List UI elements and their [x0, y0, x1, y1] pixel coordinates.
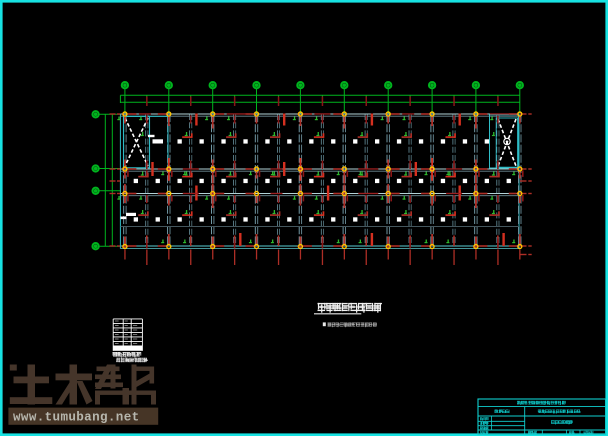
svg-text:www.tumubang.net: www.tumubang.net [13, 411, 140, 425]
